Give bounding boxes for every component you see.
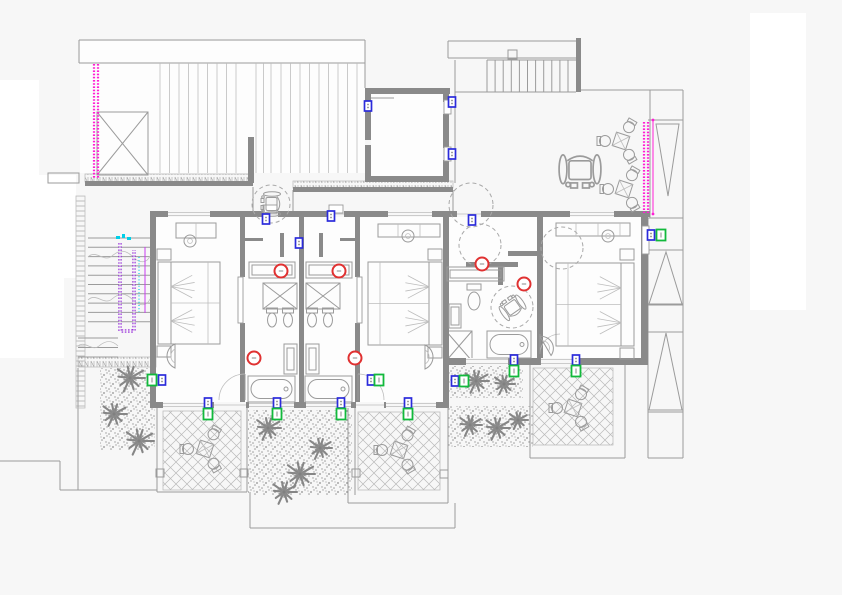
switch-marker xyxy=(573,355,580,365)
light-marker xyxy=(349,352,362,365)
socket-marker xyxy=(510,366,519,377)
cad-plan-viewport xyxy=(0,0,842,595)
wheelchair-icon xyxy=(559,155,601,188)
light-marker xyxy=(518,278,531,291)
socket-marker xyxy=(337,409,346,420)
room-floors xyxy=(80,41,641,402)
louver-triangles xyxy=(649,124,682,410)
switch-marker xyxy=(296,238,303,248)
socket-marker xyxy=(657,230,666,241)
switch-marker xyxy=(159,375,166,385)
light-marker xyxy=(476,258,489,271)
switch-marker xyxy=(328,211,335,221)
table-with-chairs xyxy=(597,117,638,164)
socket-marker xyxy=(273,409,282,420)
switch-marker xyxy=(449,149,456,159)
light-marker xyxy=(333,265,346,278)
switch-marker xyxy=(449,97,456,107)
floor-plan-canvas xyxy=(0,0,842,595)
socket-marker xyxy=(148,375,157,386)
socket-marker xyxy=(404,409,413,420)
switch-marker xyxy=(648,230,655,240)
socket-marker xyxy=(375,375,384,386)
switch-marker xyxy=(274,398,281,408)
table-with-chairs xyxy=(600,165,641,212)
switch-marker xyxy=(263,214,270,224)
switch-marker xyxy=(368,375,375,385)
socket-marker xyxy=(460,376,469,387)
light-marker xyxy=(248,352,261,365)
switch-marker xyxy=(469,215,476,225)
upper-stair xyxy=(487,60,568,92)
switch-marker xyxy=(452,376,459,386)
switch-marker xyxy=(338,398,345,408)
socket-marker xyxy=(204,409,213,420)
switch-marker xyxy=(205,398,212,408)
socket-marker xyxy=(572,366,581,377)
switch-marker xyxy=(511,355,518,365)
switch-marker xyxy=(365,101,372,111)
left-stair xyxy=(78,234,150,357)
light-marker xyxy=(275,265,288,278)
switch-marker xyxy=(405,398,412,408)
